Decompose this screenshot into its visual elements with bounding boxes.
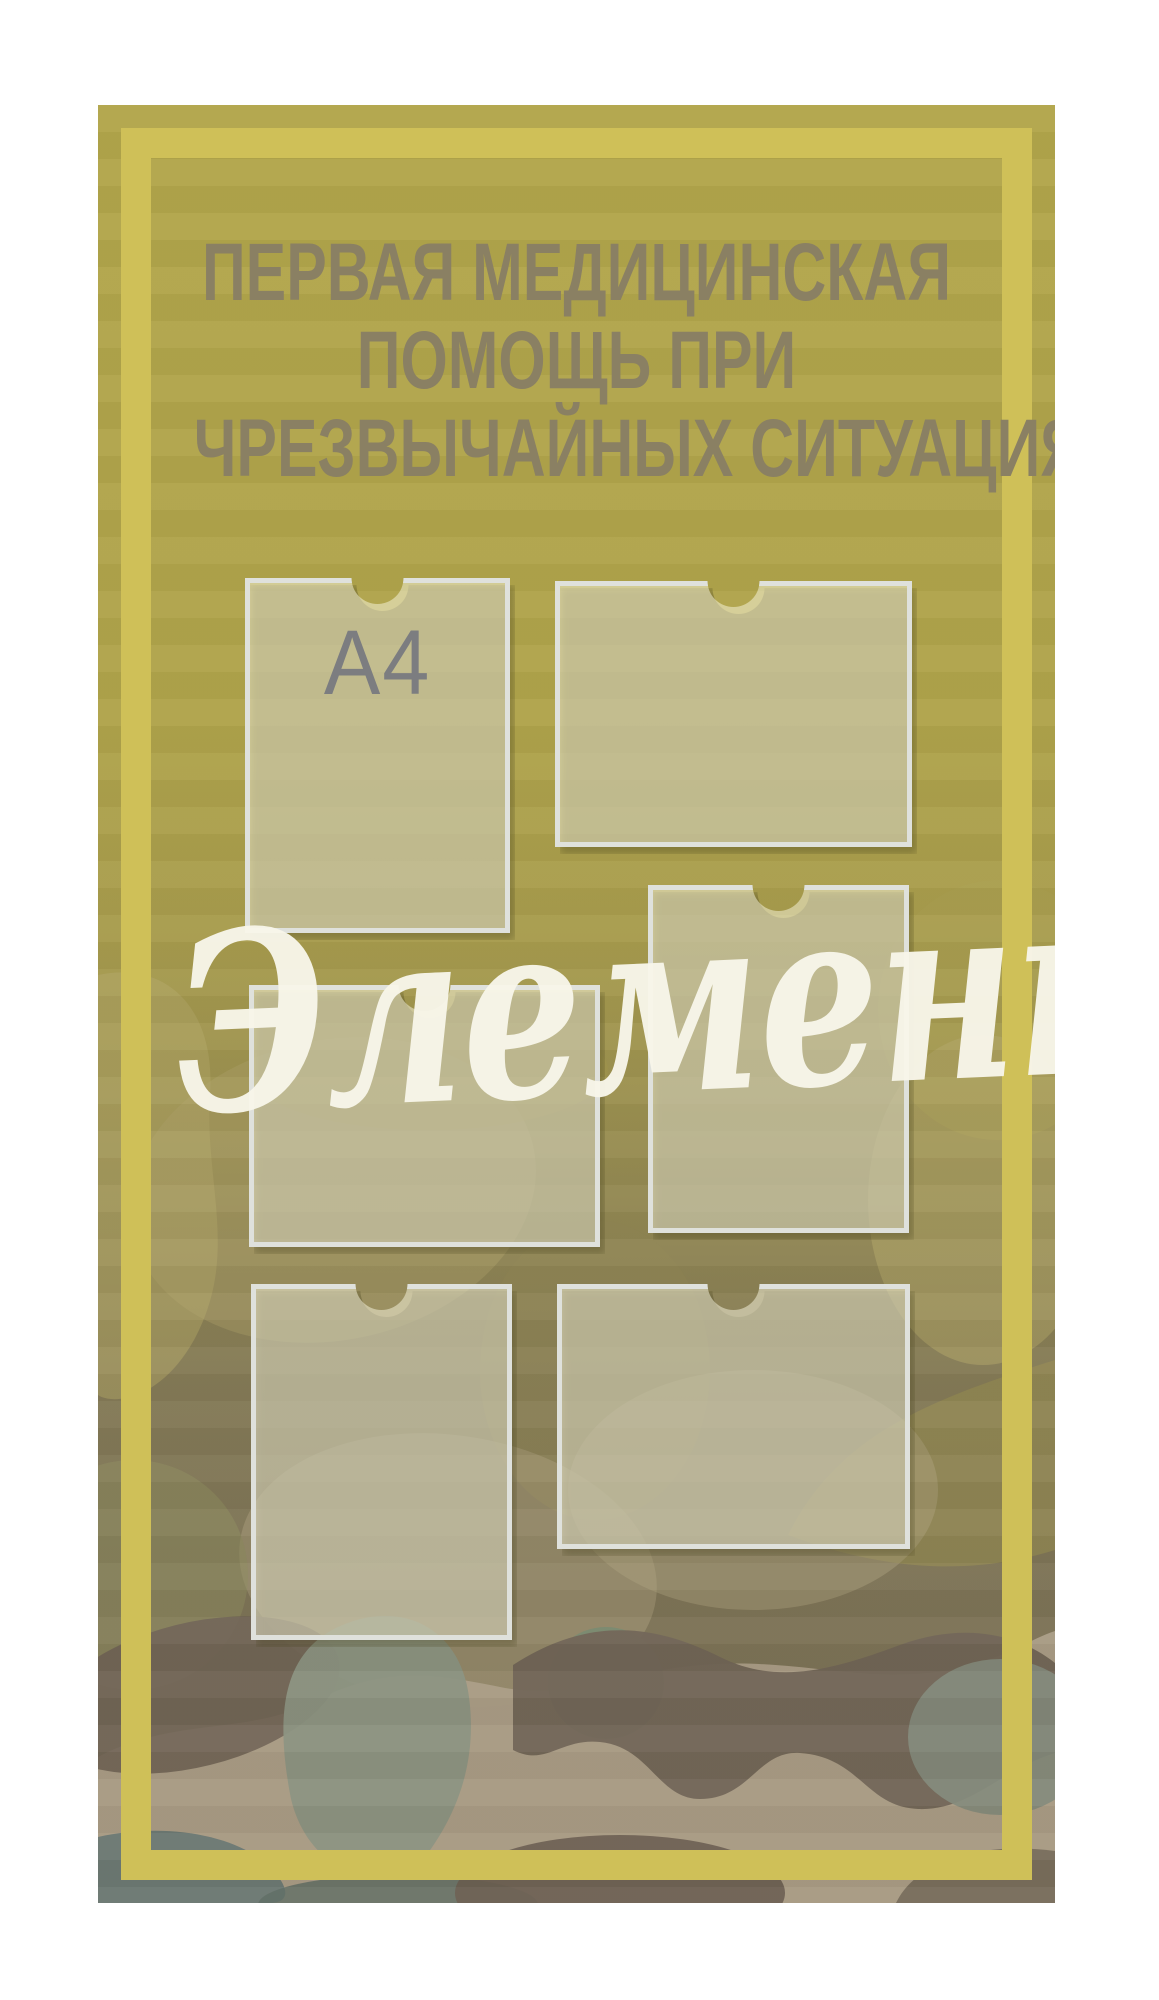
title-line-3: ЧРЕЗВЫЧАЙНЫХ СИТУАЦИЯХ bbox=[194, 401, 960, 496]
title-line-1: ПЕРВАЯ МЕДИЦИНСКАЯ bbox=[194, 225, 960, 320]
stand-title: ПЕРВАЯ МЕДИЦИНСКАЯ ПОМОЩЬ ПРИ ЧРЕЗВЫЧАЙН… bbox=[98, 229, 1055, 493]
a4-size-label: A4 bbox=[260, 611, 495, 716]
pocket-2-a4-landscape bbox=[555, 581, 912, 847]
watermark-element: Элемент bbox=[170, 858, 1055, 1150]
info-stand-board: ПЕРВАЯ МЕДИЦИНСКАЯ ПОМОЩЬ ПРИ ЧРЕЗВЫЧАЙН… bbox=[98, 105, 1055, 1903]
title-line-2: ПОМОЩЬ ПРИ bbox=[194, 313, 960, 408]
pocket-6-a4-landscape bbox=[557, 1284, 910, 1549]
pocket-5-a4-portrait bbox=[251, 1284, 512, 1640]
page: ПЕРВАЯ МЕДИЦИНСКАЯ ПОМОЩЬ ПРИ ЧРЕЗВЫЧАЙН… bbox=[0, 0, 1159, 2000]
pocket-film bbox=[251, 1284, 512, 1640]
pocket-film bbox=[557, 1284, 910, 1549]
pocket-film bbox=[555, 581, 912, 847]
